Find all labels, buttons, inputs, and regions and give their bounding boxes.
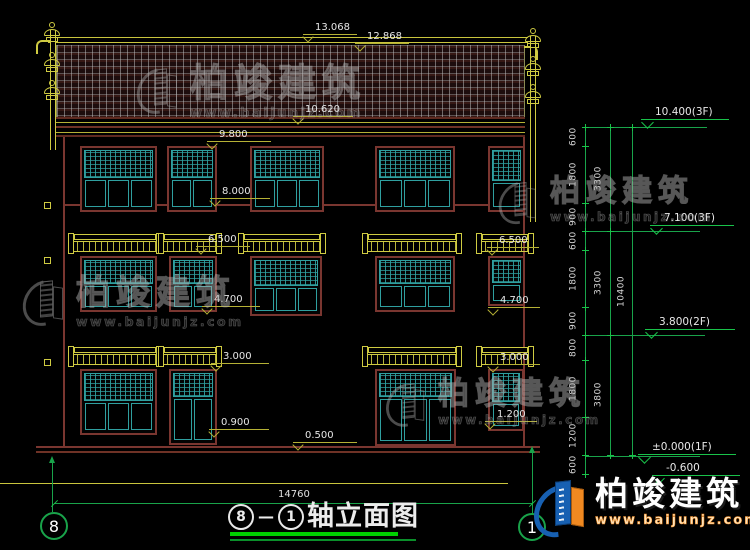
ridge-dim-label: 12.868 xyxy=(355,31,409,44)
window-3f-3 xyxy=(250,146,324,212)
level-marker-1f: ±0.000(1F) xyxy=(638,441,736,455)
watermark: 柏竣建筑 www.baijunjz.com xyxy=(386,378,601,432)
roof-finial xyxy=(525,56,541,76)
title-axis-circle-8: 8 xyxy=(228,504,254,530)
watermark-logo-icon xyxy=(500,178,542,228)
window-3f-4 xyxy=(375,146,455,212)
title-underline-2 xyxy=(230,539,416,541)
elevation-label: 6.500 xyxy=(487,235,539,248)
window-1f-1 xyxy=(80,369,157,435)
roof-finial xyxy=(44,22,60,42)
wall-mark xyxy=(44,202,51,209)
roof-ridge-line xyxy=(48,37,528,38)
watermark: 柏竣建筑 www.baijunjz.com xyxy=(498,176,713,230)
dim-segment: 800 xyxy=(567,335,580,360)
dim-segment: 600 xyxy=(567,231,580,250)
elevation-label: 6.500 xyxy=(196,234,250,247)
overall-width-dim: 14760 xyxy=(278,489,310,500)
elevation-label: 0.500 xyxy=(293,430,357,443)
roof-ridge-line-2 xyxy=(48,42,528,43)
dim-segment: 600 xyxy=(567,127,580,146)
cad-elevation-drawing: 13.068 12.868 10.620 9.800 8.000 6.500 6… xyxy=(0,0,750,550)
wall-mark xyxy=(44,257,51,264)
elevation-label: 3.000 xyxy=(488,352,540,365)
axis-leader-right xyxy=(532,452,533,514)
ground-line-2 xyxy=(36,451,540,453)
window-2f-4 xyxy=(375,256,455,312)
level-marker-2f: 3.800(2F) xyxy=(645,316,735,330)
brand-logo-icon xyxy=(536,477,590,541)
watermark-logo-icon xyxy=(387,379,431,430)
window-3f-1 xyxy=(80,146,157,212)
window-canopy xyxy=(70,347,160,367)
ground-line xyxy=(36,446,540,448)
title-underline xyxy=(230,532,398,536)
roof-finial xyxy=(525,28,541,48)
brand-logo: 柏竣建筑 www.baijunjz.com xyxy=(536,477,750,541)
title-text: 轴立面图 xyxy=(307,503,419,530)
watermark-logo-icon xyxy=(138,64,184,118)
elevation-label: 8.000 xyxy=(210,186,270,199)
watermark-logo-icon xyxy=(24,276,70,330)
roof-finial xyxy=(44,80,60,100)
dim-subtotal: 3300 xyxy=(592,231,605,335)
watermark: 柏竣建筑 www.baijunjz.com xyxy=(138,64,366,121)
window-canopy xyxy=(364,347,460,367)
window-canopy xyxy=(70,234,160,254)
dim-segment: 900 xyxy=(567,307,580,335)
window-2f-3 xyxy=(250,256,322,316)
roof-finial xyxy=(525,84,541,104)
elevation-label: 3.000 xyxy=(211,351,269,364)
elevation-label: 0.900 xyxy=(209,417,269,430)
ridge-dim-label: 13.068 xyxy=(303,22,357,35)
dim-segment: 1800 xyxy=(567,250,580,307)
base-line xyxy=(0,483,508,484)
title-axis-circle-1: 1 xyxy=(278,504,304,530)
watermark: 柏竣建筑 www.baijunjz.com xyxy=(24,276,244,330)
roof-finial xyxy=(44,52,60,72)
dim-segment: 600 xyxy=(567,455,580,474)
elevation-label: 9.800 xyxy=(207,129,271,142)
axis-bubble-8: 8 xyxy=(40,512,68,540)
window-canopy xyxy=(364,234,460,254)
wall-mark xyxy=(44,359,51,366)
elevation-label: 4.700 xyxy=(488,295,540,308)
title-dash: — xyxy=(258,507,274,526)
level-marker-roof: 10.400(3F) xyxy=(641,106,729,120)
drawing-title: 8 — 1 轴立面图 xyxy=(228,503,419,530)
window-canopy xyxy=(240,234,324,254)
